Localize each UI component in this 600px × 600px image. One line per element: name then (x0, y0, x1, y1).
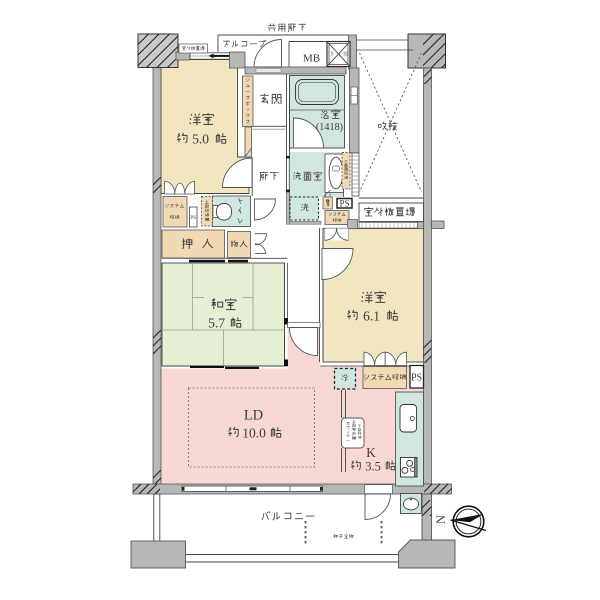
svg-text:3.5: 3.5 (365, 459, 381, 473)
svg-text:LD: LD (244, 407, 263, 423)
svg-text:N: N (433, 514, 448, 524)
svg-text:10.0: 10.0 (242, 426, 266, 441)
svg-text:(1418): (1418) (316, 122, 343, 133)
svg-text:MB: MB (303, 53, 320, 65)
svg-text:PS: PS (411, 372, 422, 383)
svg-text:5.0: 5.0 (192, 132, 209, 147)
svg-text:PS: PS (339, 198, 349, 208)
svg-text:K: K (366, 445, 376, 460)
svg-text:6.1: 6.1 (363, 309, 380, 324)
svg-text:5.7: 5.7 (208, 316, 225, 331)
svg-text:PS: PS (190, 215, 196, 221)
